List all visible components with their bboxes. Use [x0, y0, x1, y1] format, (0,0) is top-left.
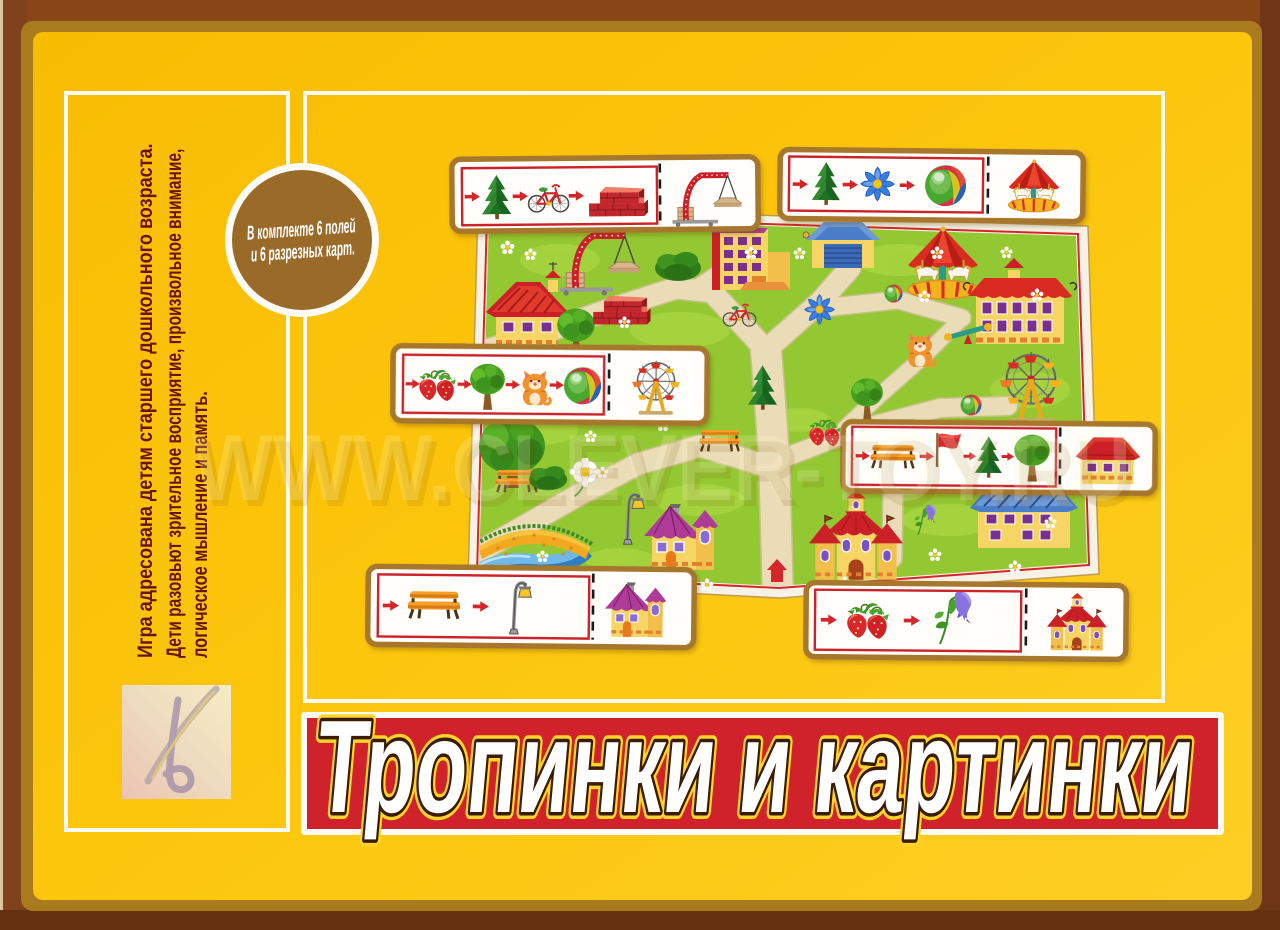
svg-text:WWW.CLEVER-TOY.RU: WWW.CLEVER-TOY.RU	[193, 415, 1131, 520]
svg-text:Дети разовьют зрительное воспр: Дети разовьют зрительное восприятие, про…	[162, 149, 186, 658]
svg-text:Тропинки и картинки: Тропинки и картинки	[310, 692, 1200, 840]
svg-text:Игра адресована детям старшего: Игра адресована детям старшего дошкольно…	[134, 143, 158, 658]
